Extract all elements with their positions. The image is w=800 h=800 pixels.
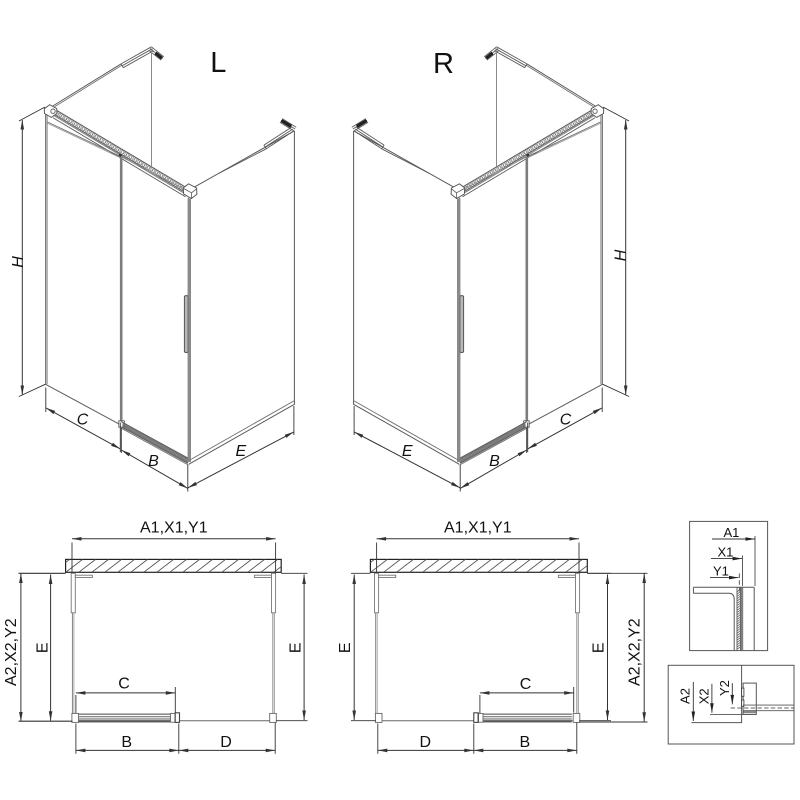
svg-text:B: B [148,453,159,470]
svg-text:A1: A1 [724,525,740,540]
svg-text:C: C [560,412,572,429]
svg-text:C: C [520,676,532,693]
svg-text:E: E [337,642,354,653]
svg-text:B: B [519,734,530,751]
svg-text:X2: X2 [696,688,711,704]
svg-text:D: D [220,734,232,751]
svg-text:B: B [489,453,500,470]
svg-text:H: H [10,256,27,268]
svg-text:R: R [433,48,454,80]
svg-text:C: C [77,412,89,429]
svg-text:E: E [235,443,246,460]
svg-text:A1,X1,Y1: A1,X1,Y1 [444,520,512,537]
svg-text:X1: X1 [718,545,734,560]
svg-text:E: E [591,642,608,653]
svg-text:Y1: Y1 [713,564,729,579]
svg-text:A1,X1,Y1: A1,X1,Y1 [140,520,208,537]
svg-text:E: E [34,642,51,653]
svg-text:Y2: Y2 [717,680,732,696]
svg-text:A2: A2 [678,688,693,704]
svg-text:E: E [402,443,413,460]
svg-text:L: L [210,47,226,79]
svg-text:A2,X2,Y2: A2,X2,Y2 [3,618,20,686]
svg-text:D: D [420,734,432,751]
svg-text:E: E [287,642,304,653]
svg-text:C: C [118,675,130,692]
svg-text:B: B [121,734,132,751]
svg-text:A2,X2,Y2: A2,X2,Y2 [627,618,644,686]
svg-text:H: H [613,249,630,261]
